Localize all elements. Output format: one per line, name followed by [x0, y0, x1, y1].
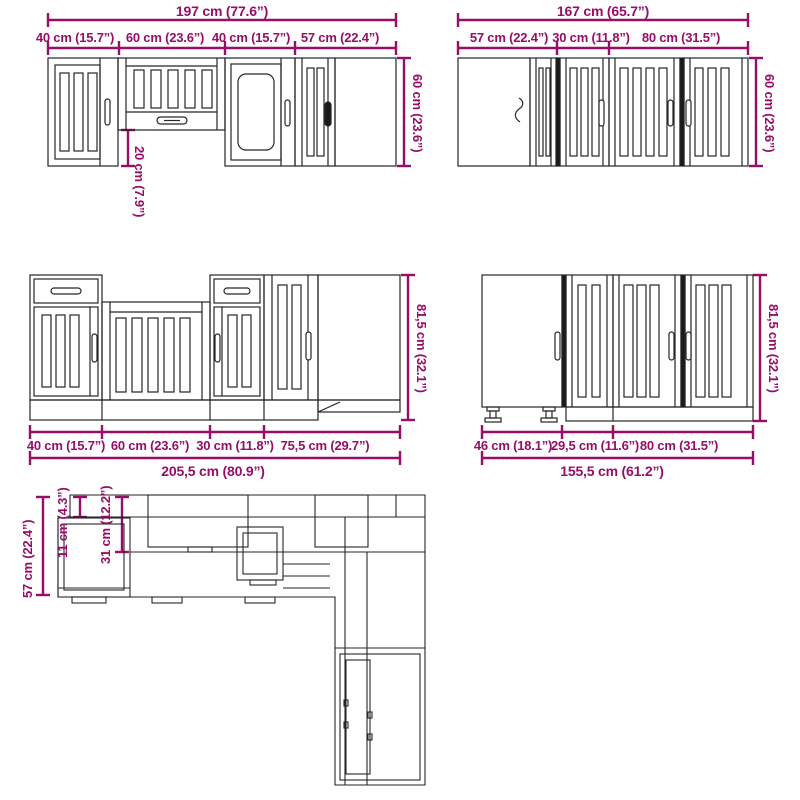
wall-right-height-label: 60 cm (23.6”) — [762, 58, 777, 168]
base-left-height-label: 81,5 cm (32.1”) — [414, 275, 429, 421]
base-cabinet-row-right-drawing — [482, 275, 753, 422]
base-right-segment-label: 29,5 cm (11.6”) — [551, 438, 639, 453]
base-right-segment-label: 80 cm (31.5”) — [640, 438, 718, 453]
wall-left-segment-label: 60 cm (23.6”) — [126, 30, 204, 45]
base-left-segment-label: 40 cm (15.7”) — [27, 438, 105, 453]
plan-depth-label: 57 cm (22.4”) — [20, 494, 35, 598]
wall-left-total-label: 197 cm (77.6”) — [176, 3, 268, 19]
plan-medium-dim-label: 31 cm (12.2”) — [98, 470, 113, 564]
dimension-lines — [30, 13, 767, 595]
diagram-canvas — [0, 0, 800, 800]
base-left-segment-label: 60 cm (23.6”) — [111, 438, 189, 453]
wall-right-segment-label: 30 cm (11.8”) — [552, 30, 630, 45]
wall-left-segment-label: 57 cm (22.4”) — [301, 30, 379, 45]
wall-left-inner-height-label: 20 cm (7.9”) — [132, 132, 147, 232]
wall-left-height-label: 60 cm (23.6”) — [410, 58, 425, 168]
base-cabinet-row-left-drawing — [30, 275, 400, 420]
base-left-segment-label: 75,5 cm (29.7”) — [281, 438, 370, 453]
base-right-segment-label: 46 cm (18.1”) — [474, 438, 552, 453]
wall-left-segment-label: 40 cm (15.7”) — [212, 30, 290, 45]
wall-cabinet-row-left-drawing — [48, 58, 396, 166]
wall-right-segment-label: 57 cm (22.4”) — [470, 30, 548, 45]
plan-small-dim-label: 11 cm (4.3”) — [55, 468, 70, 558]
kitchen-cabinet-dimension-diagram: 197 cm (77.6”) 40 cm (15.7”) 60 cm (23.6… — [0, 0, 800, 800]
wall-cabinet-row-right-drawing — [458, 58, 748, 166]
base-left-total-label: 205,5 cm (80.9”) — [161, 463, 264, 479]
wall-left-segment-label: 40 cm (15.7”) — [36, 30, 114, 45]
base-right-height-label: 81,5 cm (32.1”) — [766, 275, 781, 422]
wall-right-segment-label: 80 cm (31.5”) — [642, 30, 720, 45]
base-left-segment-label: 30 cm (11.8”) — [196, 438, 274, 453]
base-right-total-label: 155,5 cm (61.2”) — [560, 463, 663, 479]
wall-right-total-label: 167 cm (65.7”) — [557, 3, 649, 19]
kitchen-plan-view-drawing — [58, 495, 425, 785]
